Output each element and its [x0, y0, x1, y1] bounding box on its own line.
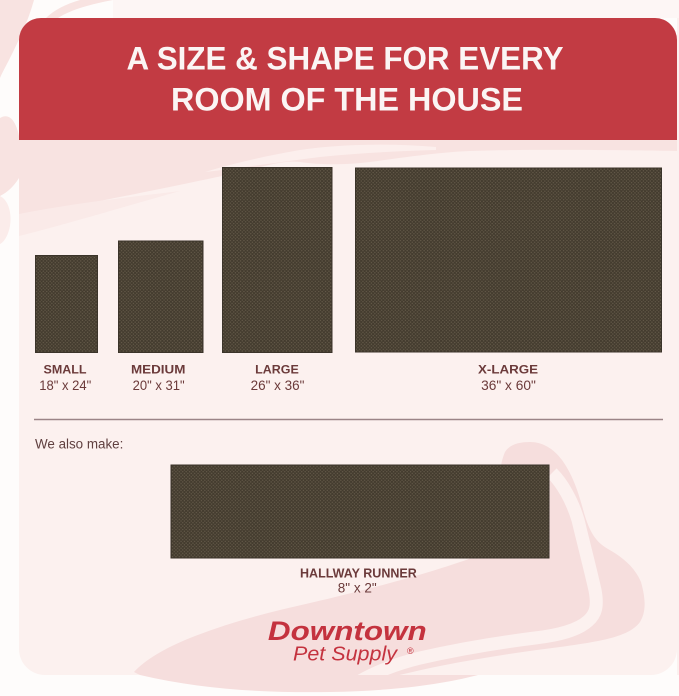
svg-text:HALLWAY RUNNER: HALLWAY RUNNER: [300, 567, 417, 581]
svg-text:X-LARGE: X-LARGE: [478, 363, 538, 377]
svg-text:SMALL: SMALL: [44, 363, 87, 377]
svg-text:8" x 2": 8" x 2": [338, 580, 377, 596]
svg-text:LARGE: LARGE: [255, 363, 299, 377]
svg-text:Pet Supply: Pet Supply: [293, 643, 399, 666]
svg-text:A SIZE & SHAPE FOR EVERY: A SIZE & SHAPE FOR EVERY: [127, 41, 564, 77]
svg-text:®: ®: [407, 646, 414, 656]
svg-text:ROOM OF THE HOUSE: ROOM OF THE HOUSE: [171, 82, 523, 118]
svg-text:We also make:: We also make:: [35, 437, 123, 452]
svg-text:18" x 24": 18" x 24": [39, 377, 91, 393]
svg-text:20" x 31": 20" x 31": [133, 377, 185, 393]
svg-text:36" x 60": 36" x 60": [481, 377, 536, 393]
svg-text:26" x 36": 26" x 36": [251, 377, 305, 393]
svg-text:MEDIUM: MEDIUM: [131, 363, 185, 377]
svg-text:Downtown: Downtown: [268, 616, 427, 646]
